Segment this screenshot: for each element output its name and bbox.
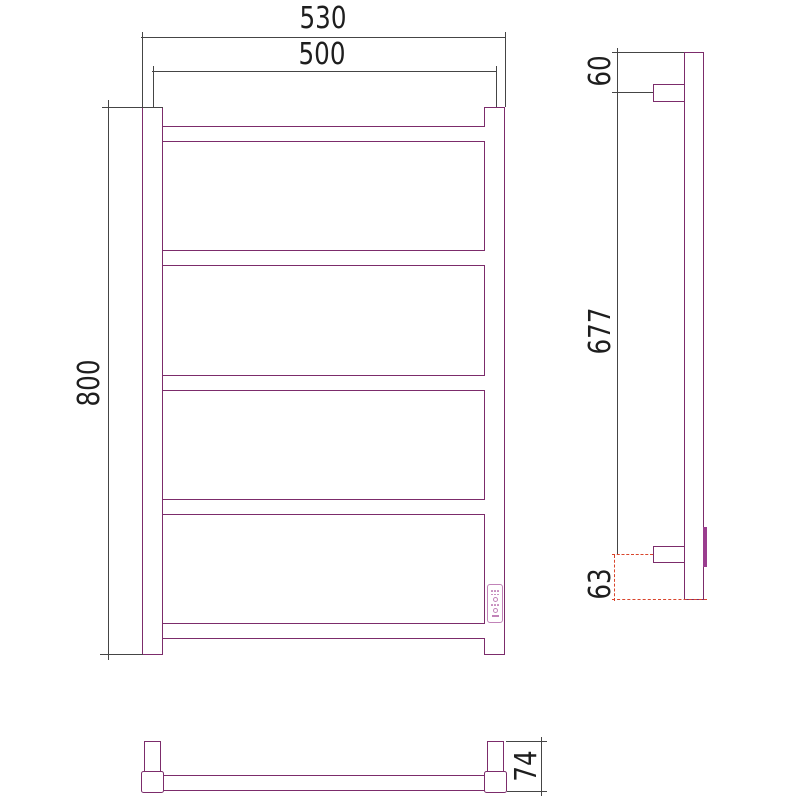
control-panel [487, 584, 503, 623]
dim-500-label: 500 [299, 40, 346, 70]
dim-63-dash-top [612, 554, 653, 555]
panel-button-icon [493, 608, 498, 613]
bottom-right-block [484, 771, 507, 793]
dim-60-label: 60 [586, 55, 616, 86]
dim-530-ext-left [142, 32, 143, 107]
dim-60-677-line [617, 48, 618, 555]
panel-dots-icon [491, 594, 493, 596]
dim-530-ext-right [505, 32, 506, 107]
dim-63-label: 63 [586, 568, 616, 599]
side-rail [684, 52, 704, 600]
bottom-crossbar [163, 775, 485, 791]
front-rung [163, 250, 485, 266]
side-bottom-bracket [653, 546, 685, 563]
side-top-bracket [653, 84, 685, 102]
panel-dots-icon [491, 604, 493, 606]
dim-60-ext-top [612, 52, 684, 53]
panel-dots-icon [491, 590, 493, 592]
front-rung [163, 126, 485, 142]
dim-800-label: 800 [75, 360, 105, 407]
dim-800-ext-top [102, 107, 163, 108]
dim-677-label: 677 [586, 308, 616, 355]
dim-500-ext-left [153, 66, 154, 107]
dim-530-label: 530 [300, 4, 347, 34]
front-rung [163, 499, 485, 515]
side-control-panel-profile [703, 527, 707, 567]
front-rung [163, 623, 485, 639]
dim-74-label: 74 [512, 750, 542, 781]
panel-display-icon [492, 615, 499, 617]
dim-60-ext-mid [612, 92, 653, 93]
dim-63-dash-bottom [612, 599, 707, 600]
bottom-left-stem [144, 741, 161, 773]
panel-button-icon [493, 597, 498, 602]
bottom-left-block [141, 771, 164, 793]
front-left-rail [142, 107, 163, 655]
dim-500-ext-right [496, 66, 497, 107]
dim-800-ext-bottom [100, 654, 143, 655]
front-rung [163, 375, 485, 391]
bottom-right-stem [487, 741, 504, 773]
front-right-rail [484, 107, 505, 655]
drawing-canvas: 530 500 800 60 677 63 [0, 0, 800, 800]
dim-800-line [108, 100, 109, 660]
